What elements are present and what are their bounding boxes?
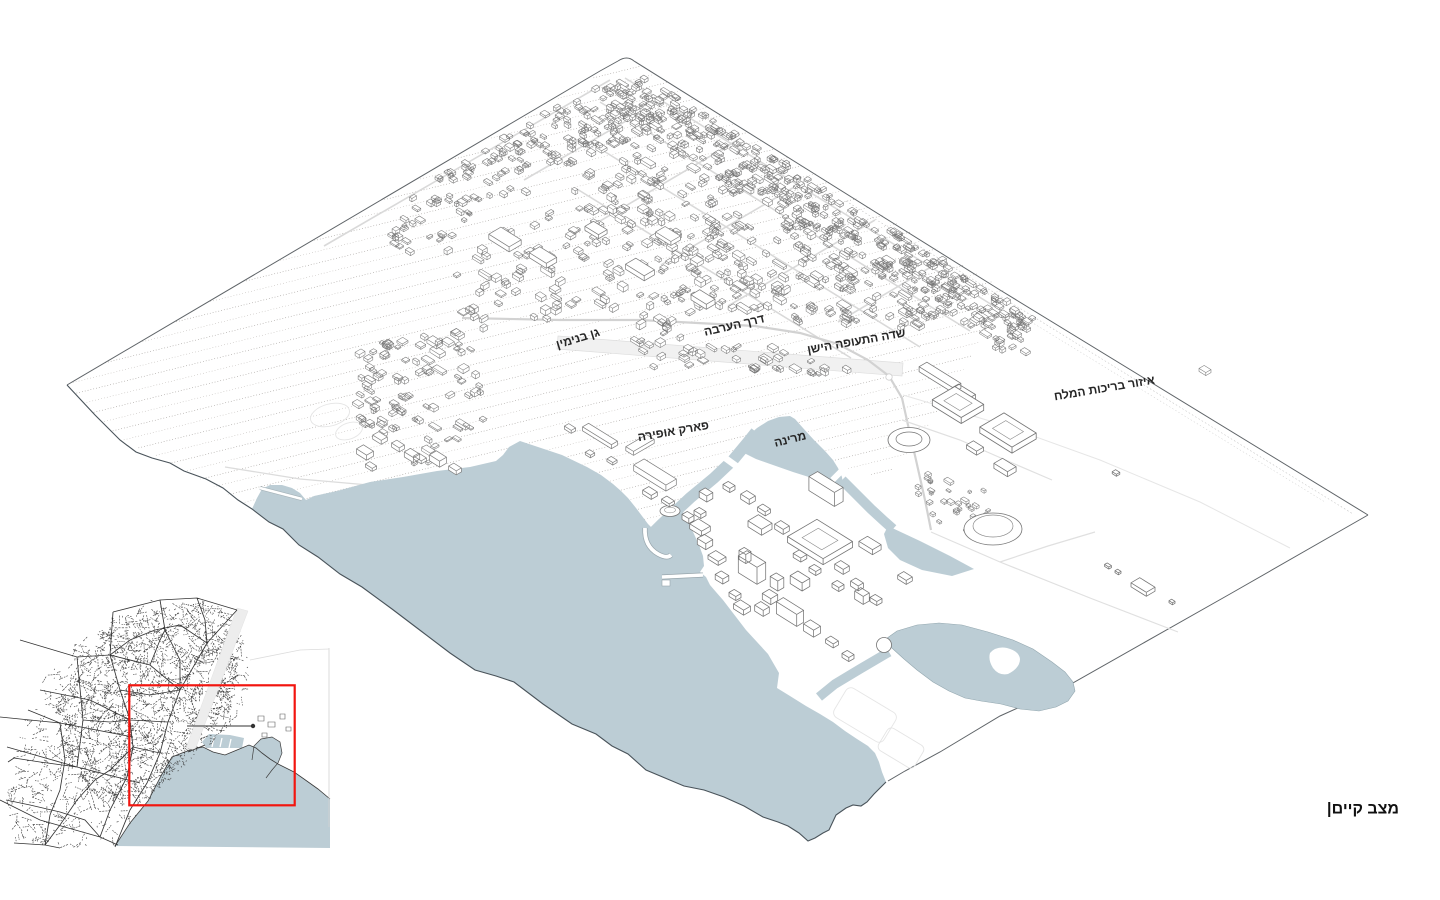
svg-text:|: | — [1327, 801, 1331, 818]
svg-text:מצב קיים: מצב קיים — [1332, 801, 1399, 818]
